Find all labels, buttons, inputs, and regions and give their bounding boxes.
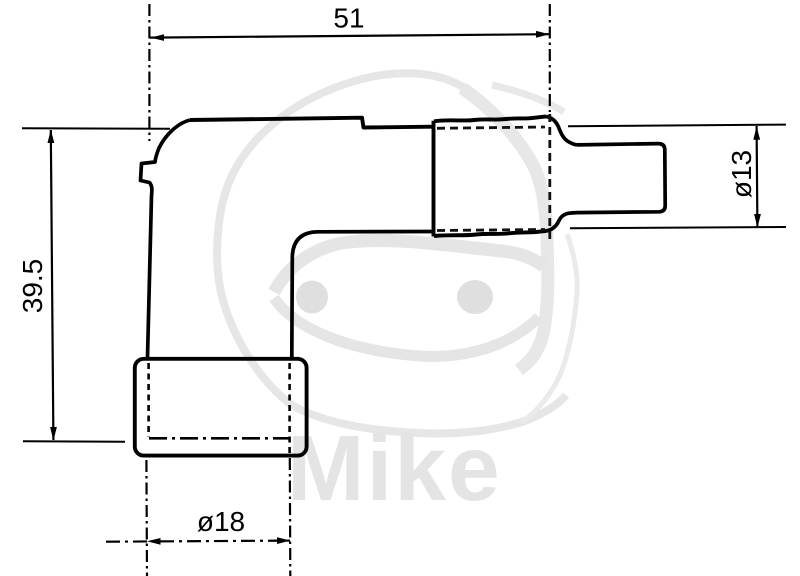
svg-text:ø18: ø18	[197, 506, 245, 537]
svg-text:ø13: ø13	[726, 150, 757, 198]
svg-text:51: 51	[333, 3, 364, 34]
svg-text:39.5: 39.5	[17, 259, 48, 314]
svg-text:Mike: Mike	[287, 416, 502, 520]
